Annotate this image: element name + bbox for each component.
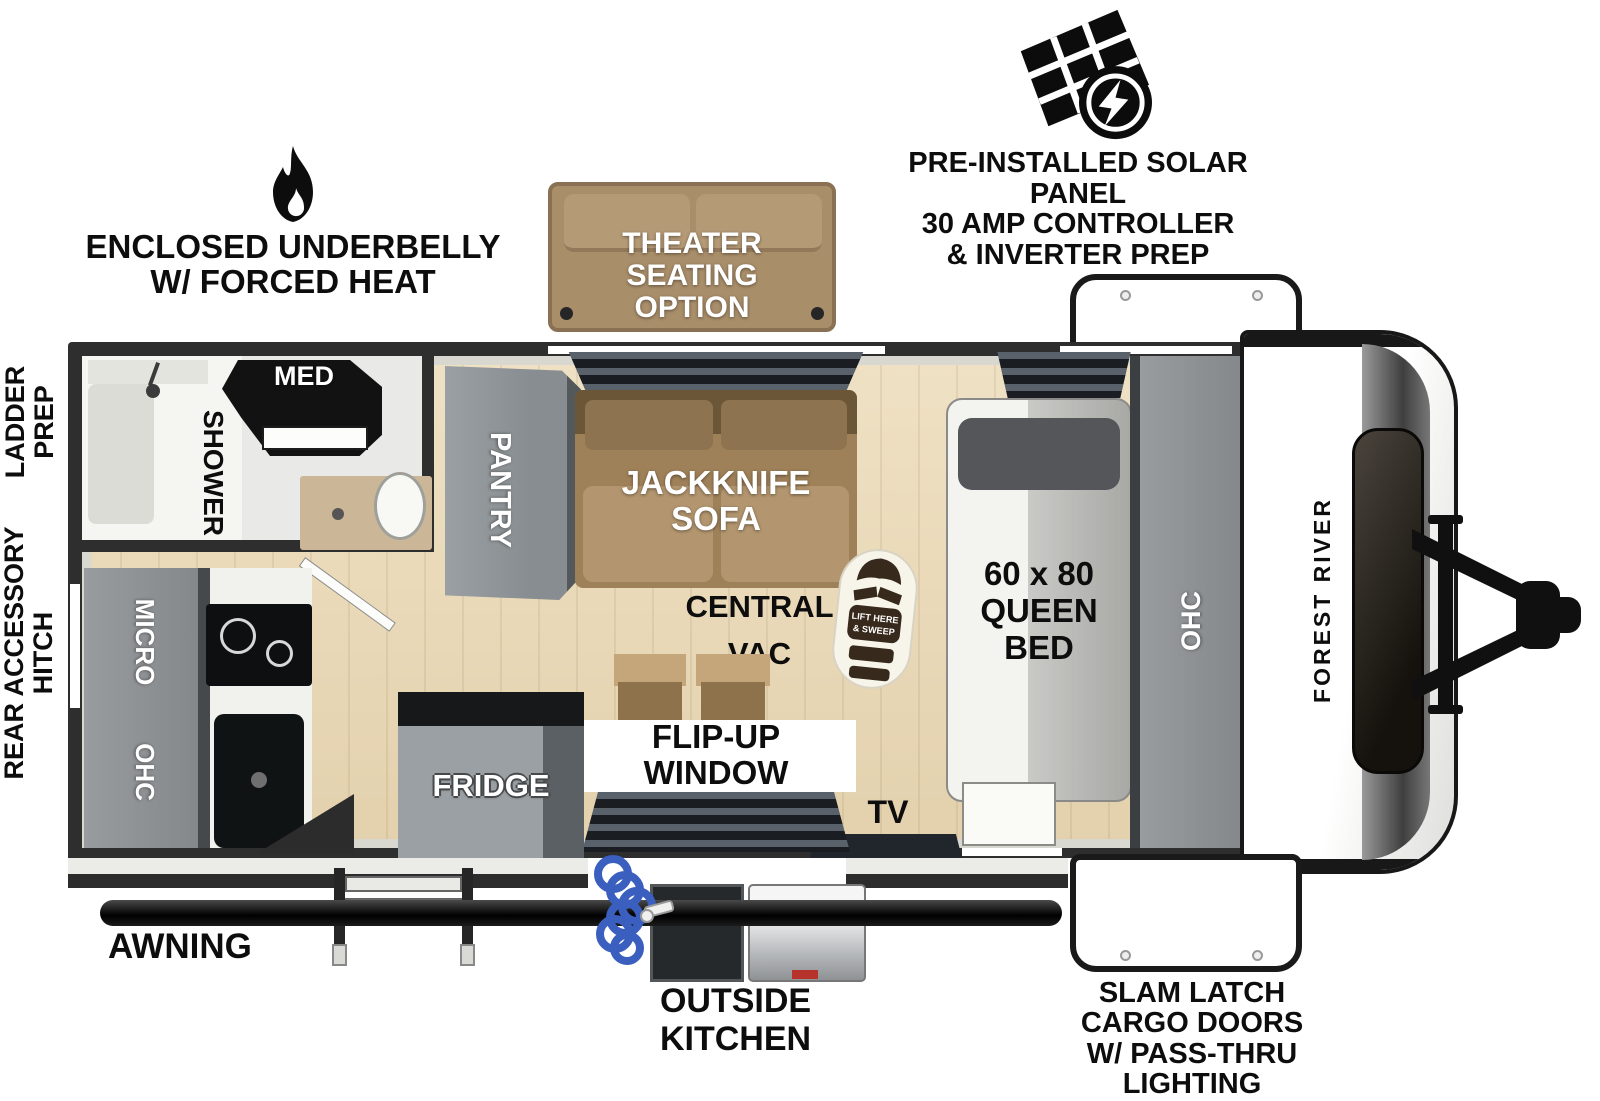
brand-label: FOREST RIVER xyxy=(1310,445,1338,755)
spray-hose-icon xyxy=(586,852,698,967)
shower-label: SHOWER xyxy=(190,378,228,568)
sink-drain xyxy=(332,508,344,520)
shower-bench xyxy=(88,384,154,524)
outside-cooler xyxy=(748,884,866,982)
kitchen-ohc-label: OHC xyxy=(126,722,158,822)
underbelly-text-line: W/ FORCED HEAT xyxy=(68,265,518,300)
bed-pillow xyxy=(958,418,1120,490)
screw xyxy=(1120,290,1131,301)
cargo-door-flap-bottom xyxy=(1070,854,1302,972)
screw xyxy=(1252,950,1263,961)
stool xyxy=(612,654,688,724)
cooktop xyxy=(206,604,312,686)
slam-latch-line: W/ PASS-THRU xyxy=(1052,1039,1332,1069)
outside-kitchen-line: KITCHEN xyxy=(608,1020,863,1058)
solar-text-line: 30 AMP CONTROLLER xyxy=(858,209,1298,240)
screw xyxy=(1252,290,1263,301)
flip-up-window xyxy=(582,792,850,852)
floorplan-diagram: PRE-INSTALLED SOLAR PANEL 30 AMP CONTROL… xyxy=(0,0,1600,1101)
flip-window-line: FLIP-UP xyxy=(576,720,856,755)
burner xyxy=(266,640,293,667)
burner xyxy=(220,618,256,654)
bed-ohc-label: OHC xyxy=(1177,561,1207,681)
ladder-prep-line: LADDER xyxy=(1,352,30,492)
med-label: MED xyxy=(244,362,364,391)
rear-hitch-receiver xyxy=(70,584,80,708)
slam-latch-line: CARGO DOORS xyxy=(1052,1008,1332,1038)
rear-accessory-hitch-label: REAR ACCESSORY HITCH xyxy=(0,503,58,803)
underbelly-callout: ENCLOSED UNDERBELLY W/ FORCED HEAT xyxy=(68,146,518,300)
trailer-hitch-icon xyxy=(1412,515,1582,715)
med-cabinet-front xyxy=(262,426,368,450)
flip-window-line: WINDOW xyxy=(576,756,856,791)
jackknife-sofa: JACKKNIFE SOFA xyxy=(575,390,857,588)
stool xyxy=(694,654,772,724)
slam-latch-label: SLAM LATCH CARGO DOORS W/ PASS-THRU LIGH… xyxy=(1052,978,1332,1100)
awning-bar xyxy=(100,900,1062,926)
solar-text-line: & INVERTER PREP xyxy=(858,240,1298,271)
sofa-back-cushion xyxy=(721,400,847,450)
sofa-back-cushion xyxy=(585,400,713,450)
screw xyxy=(1120,950,1131,961)
theater-text-line: THEATER xyxy=(552,228,832,260)
fridge: FRIDGE xyxy=(398,692,584,860)
nightstand xyxy=(962,782,1056,846)
fridge-top xyxy=(398,692,584,730)
awning-label: AWNING xyxy=(108,928,358,965)
toilet xyxy=(374,472,426,540)
fridge-label: FRIDGE xyxy=(398,770,584,803)
sink-drain xyxy=(251,772,267,788)
step-tread xyxy=(345,876,462,892)
pantry-label: PANTRY xyxy=(479,395,515,585)
theater-text-line: SEATING xyxy=(552,260,832,292)
step-foot xyxy=(460,944,475,966)
solar-panel-icon xyxy=(978,0,1178,148)
queen-bed-label: 60 x 80 QUEEN BED xyxy=(946,556,1132,667)
cap-top-trim xyxy=(1244,334,1454,347)
rear-hitch-line: REAR ACCESSORY xyxy=(0,503,29,803)
tv-label: TV xyxy=(846,796,930,830)
rear-hitch-line: HITCH xyxy=(29,503,58,803)
outside-kitchen-label: OUTSIDE KITCHEN xyxy=(608,982,863,1058)
wall-window-slit xyxy=(962,848,1062,856)
flip-up-window-callout: FLIP-UP WINDOW xyxy=(576,720,856,792)
micro-label: MICRO xyxy=(126,577,158,707)
sofa-label-line: SOFA xyxy=(575,502,857,537)
bed-window xyxy=(990,352,1138,398)
bootprint-icon: LIFT HERE & SWEEP xyxy=(827,544,923,694)
shower-head-icon xyxy=(146,384,160,398)
solar-callout: PRE-INSTALLED SOLAR PANEL 30 AMP CONTROL… xyxy=(858,0,1298,271)
sofa-label-line: JACKKNIFE xyxy=(575,466,857,501)
bed-label-line: BED xyxy=(946,630,1132,667)
outside-kitchen-line: OUTSIDE xyxy=(608,982,863,1020)
theater-seating-sofa: THEATER SEATING OPTION xyxy=(548,182,836,332)
ladder-prep-line: PREP xyxy=(30,352,59,492)
bed-label-line: 60 x 80 xyxy=(946,556,1132,593)
cooler-handle xyxy=(792,970,818,979)
slam-latch-line: SLAM LATCH xyxy=(1052,978,1332,1008)
flame-icon xyxy=(261,146,325,230)
theater-text-line: OPTION xyxy=(552,292,832,324)
bed-label-line: QUEEN xyxy=(946,593,1132,630)
slam-latch-line: LIGHTING xyxy=(1052,1069,1332,1099)
solar-text-line: PRE-INSTALLED SOLAR PANEL xyxy=(858,148,1298,209)
underbelly-text-line: ENCLOSED UNDERBELLY xyxy=(68,230,518,265)
kitchen-sink xyxy=(214,714,304,848)
ladder-prep-label: LADDER PREP xyxy=(1,352,59,492)
